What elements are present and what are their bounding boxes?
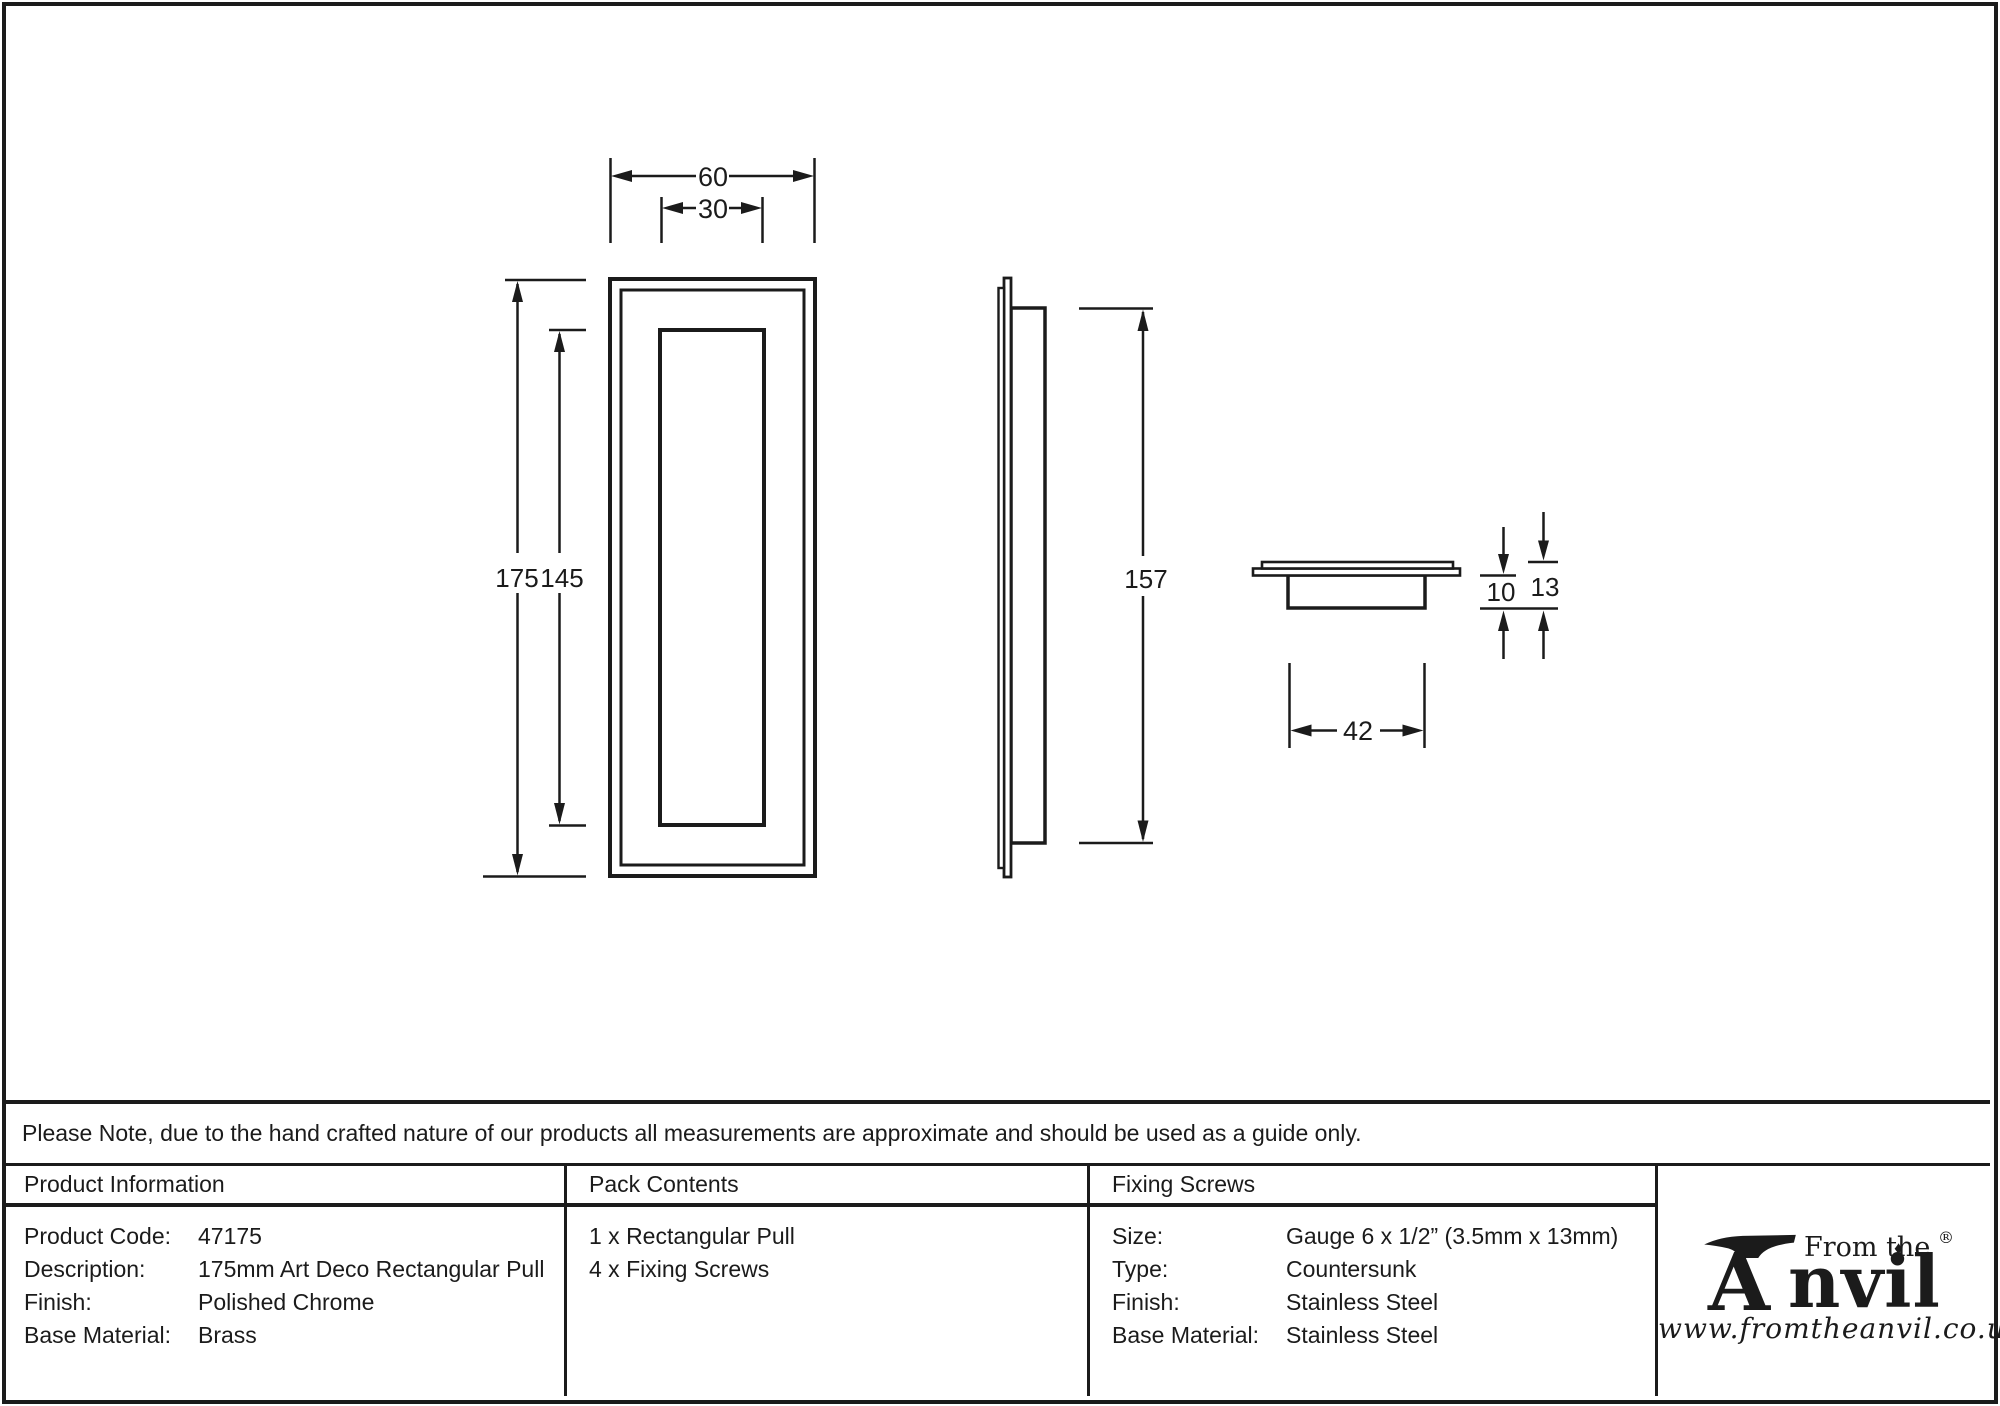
- table-row: Type: Countersunk: [1112, 1253, 1655, 1286]
- list-item: 4 x Fixing Screws: [589, 1253, 1087, 1286]
- row-value: Stainless Steel: [1286, 1286, 1655, 1319]
- table-row: Base Material: Brass: [24, 1319, 564, 1352]
- dim-front-width-inner: 30: [662, 194, 763, 243]
- dim-side-height: 157: [1079, 309, 1168, 844]
- dim-label-145: 145: [540, 563, 583, 593]
- brand-logo: A nvil From the ♦ ® www.fromtheanvil.co.…: [1658, 1166, 1990, 1396]
- row-label: Size:: [1112, 1220, 1286, 1253]
- dim-label-13: 13: [1531, 572, 1560, 602]
- brand-url: www.fromtheanvil.co.uk: [1658, 1312, 1990, 1345]
- side-recess-box: [1011, 308, 1045, 843]
- dim-label-30: 30: [698, 194, 728, 224]
- row-value: Brass: [198, 1319, 564, 1352]
- logo-prefix: From the: [1804, 1232, 1930, 1263]
- brand-logo-cell: A nvil From the ♦ ® www.fromtheanvil.co.…: [1655, 1166, 1990, 1396]
- row-value: Countersunk: [1286, 1253, 1655, 1286]
- row-label: Finish:: [1112, 1286, 1286, 1319]
- product-info-body: Product Code: 47175 Description: 175mm A…: [2, 1207, 564, 1352]
- row-value: 175mm Art Deco Rectangular Pull: [198, 1253, 564, 1286]
- dim-top-total-depth: 13: [1528, 512, 1559, 659]
- logo-initial: A: [1708, 1242, 1770, 1322]
- dim-top-width: 42: [1290, 663, 1425, 748]
- dim-label-157: 157: [1124, 564, 1167, 594]
- table-row: Base Material: Stainless Steel: [1112, 1319, 1655, 1352]
- fixing-screws-column: Fixing Screws Size: Gauge 6 x 1/2” (3.5m…: [1087, 1166, 1655, 1396]
- fixing-screws-header: Fixing Screws: [1090, 1166, 1655, 1207]
- diamond-icon: ♦: [1894, 1238, 1903, 1259]
- row-label: Base Material:: [24, 1319, 198, 1352]
- table-row: Finish: Stainless Steel: [1112, 1286, 1655, 1319]
- spec-table: Product Information Product Code: 47175 …: [2, 1163, 1990, 1396]
- side-step-plate: [999, 288, 1005, 868]
- table-row: Product Code: 47175: [24, 1220, 564, 1253]
- row-value: Stainless Steel: [1286, 1319, 1655, 1352]
- row-label: Finish:: [24, 1286, 198, 1319]
- list-item: 1 x Rectangular Pull: [589, 1220, 1087, 1253]
- side-view: [999, 278, 1046, 877]
- row-label: Product Code:: [24, 1220, 198, 1253]
- dim-front-height-inner: 145: [540, 330, 586, 826]
- pack-contents-header: Pack Contents: [567, 1166, 1087, 1207]
- row-value: Gauge 6 x 1/2” (3.5mm x 13mm): [1286, 1220, 1655, 1253]
- top-step-plate: [1262, 562, 1453, 569]
- disclaimer-band: Please Note, due to the hand crafted nat…: [2, 1100, 1990, 1163]
- disclaimer-text: Please Note, due to the hand crafted nat…: [2, 1120, 1362, 1147]
- table-row: Size: Gauge 6 x 1/2” (3.5mm x 13mm): [1112, 1220, 1655, 1253]
- row-value: Polished Chrome: [198, 1286, 564, 1319]
- product-info-header: Product Information: [2, 1166, 564, 1207]
- dim-label-175: 175: [495, 563, 538, 593]
- row-value: 47175: [198, 1220, 564, 1253]
- technical-drawing: 60 30 175 145 157: [0, 0, 2000, 1104]
- row-label: Type:: [1112, 1253, 1286, 1286]
- registered-mark-icon: ®: [1938, 1228, 1954, 1247]
- front-recess: [660, 330, 764, 825]
- top-recess-box: [1288, 575, 1425, 608]
- pack-contents-body: 1 x Rectangular Pull 4 x Fixing Screws: [567, 1207, 1087, 1286]
- row-label: Description:: [24, 1253, 198, 1286]
- product-info-column: Product Information Product Code: 47175 …: [2, 1166, 564, 1396]
- row-label: Base Material:: [1112, 1319, 1286, 1352]
- pack-contents-column: Pack Contents 1 x Rectangular Pull 4 x F…: [564, 1166, 1087, 1396]
- dim-label-10: 10: [1487, 577, 1516, 607]
- dim-label-60: 60: [698, 162, 728, 192]
- fixing-screws-body: Size: Gauge 6 x 1/2” (3.5mm x 13mm) Type…: [1090, 1207, 1655, 1352]
- table-row: Finish: Polished Chrome: [24, 1286, 564, 1319]
- front-view: [610, 279, 815, 876]
- table-row: Description: 175mm Art Deco Rectangular …: [24, 1253, 564, 1286]
- top-view: [1253, 562, 1460, 608]
- dim-label-42: 42: [1343, 716, 1373, 746]
